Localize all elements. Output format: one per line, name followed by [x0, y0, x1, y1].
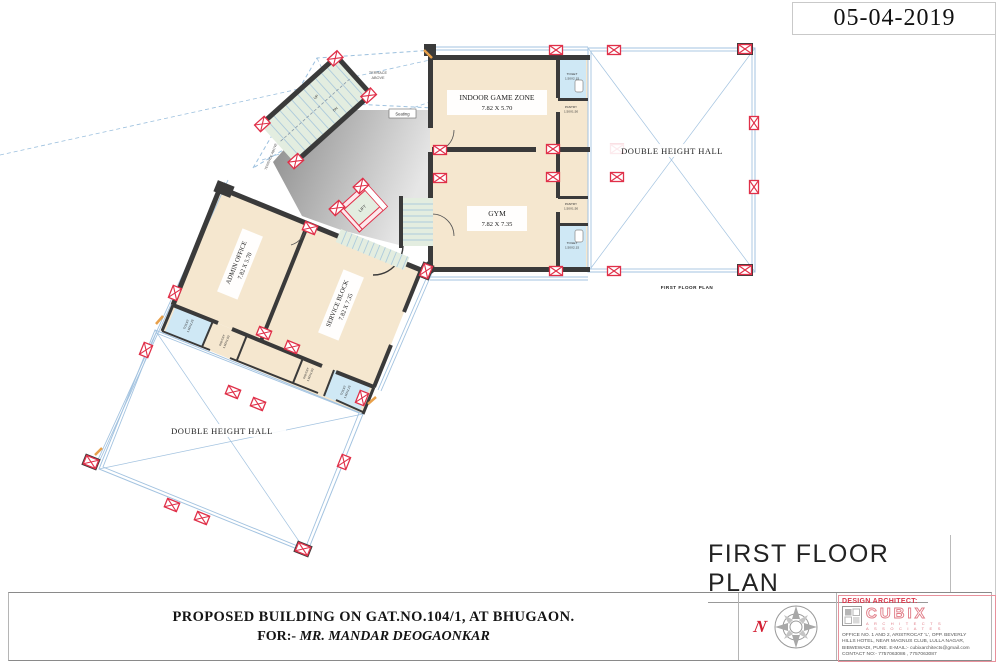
toilet-label: TOILET [567, 72, 578, 76]
room-dim-gym: 7.82 X 7.35 [482, 221, 513, 228]
compass-rose-icon [772, 603, 820, 651]
pantry-label: PANTRY [565, 202, 577, 206]
architect-box: DESIGN ARCHITECT: CUBIX A R C H I T E C … [838, 595, 996, 662]
toilet-dim: 1.50X2.15 [565, 77, 579, 81]
client-name: MR. MANDAR DEOGAONKAR [300, 629, 490, 644]
terrace-label-line1: TERRACE [369, 71, 388, 75]
cubix-logo-icon [842, 606, 862, 626]
right-wing: INDOOR GAME ZONE 7.82 X 5.70 GYM 7.82 X … [424, 43, 759, 290]
project-line1: PROPOSED BUILDING ON GAT.NO.104/1, AT BH… [172, 609, 574, 626]
titleblock-divider-line [950, 535, 951, 592]
toilet-label: TOILET [567, 241, 578, 245]
room-dim-indoor-game-zone: 7.82 X 5.70 [482, 105, 513, 112]
plan-caption: FIRST FLOOR PLAN [661, 285, 714, 290]
architect-brand-row: CUBIX A R C H I T E C T S A S S O C I A … [842, 606, 992, 631]
brand-name: CUBIX [866, 606, 943, 621]
room-label-indoor-game-zone: INDOOR GAME ZONE [460, 93, 535, 102]
north-compass-cell: N [738, 593, 836, 660]
project-for-prefix: FOR:- [257, 629, 296, 644]
titleblock-divider-2 [836, 593, 837, 660]
toilet-dim: 1.50X2.15 [565, 246, 579, 250]
title-block: PROPOSED BUILDING ON GAT.NO.104/1, AT BH… [8, 592, 992, 661]
seating-label: Seating [395, 112, 410, 117]
sheet-border-right [995, 2, 996, 661]
date-box: 05-04-2019 [792, 2, 996, 35]
drawing-sheet: TERRACE ABOVE TERRACE ABOVE Railing for … [0, 0, 1000, 663]
room-label-double-height-hall-left: DOUBLE HEIGHT HALL [171, 426, 273, 436]
address-line-4: CONTACT NO:- 7757063086 , 7757063087 [842, 652, 992, 658]
architect-heading: DESIGN ARCHITECT: [842, 598, 992, 605]
room-label-double-height-hall-right: DOUBLE HEIGHT HALL [621, 146, 723, 156]
pantry-dim: 1.50X1.50 [564, 110, 578, 114]
room-label-gym: GYM [488, 209, 506, 218]
brand-subline-2: A S S O C I A T E S [866, 627, 943, 631]
pantry-dim: 1.50X1.50 [564, 207, 578, 211]
project-description: PROPOSED BUILDING ON GAT.NO.104/1, AT BH… [9, 593, 738, 660]
pantry-label: PANTRY [565, 105, 577, 109]
sheet-date: 05-04-2019 [834, 5, 956, 32]
wc-fixture [575, 80, 583, 92]
north-letter: N [752, 617, 769, 637]
architect-address: OFFICE NO. 1 AND 2, ARISTROCAT 'L', OPP.… [842, 633, 992, 659]
project-line2: FOR:- MR. MANDAR DEOGAONKAR [257, 629, 490, 645]
terrace-label-line2: ABOVE [371, 76, 385, 80]
